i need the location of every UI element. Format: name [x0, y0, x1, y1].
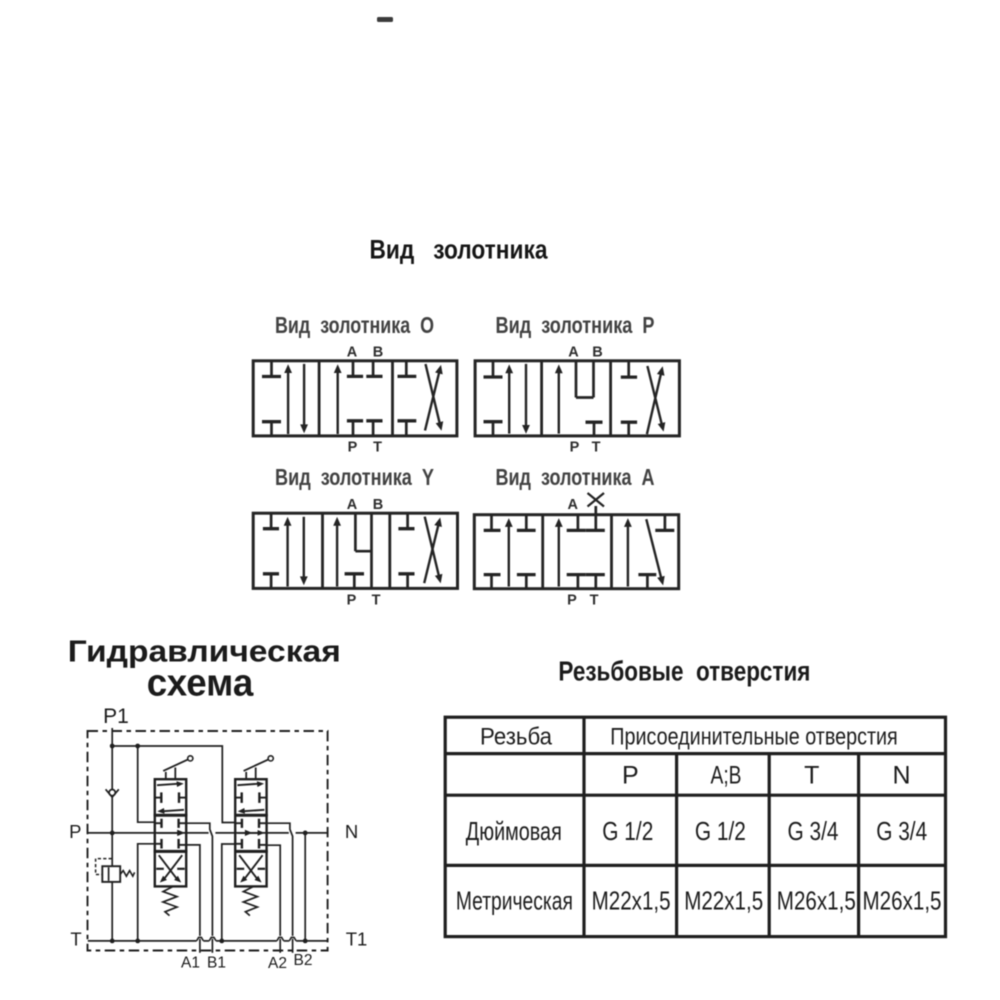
svg-text:Присоединительные отверстия: Присоединительные отверстия: [610, 724, 898, 751]
svg-text:Резьба: Резьба: [480, 724, 552, 751]
svg-text:T1: T1: [346, 929, 368, 950]
svg-text:схема: схема: [147, 663, 254, 705]
svg-text:T: T: [804, 762, 819, 790]
svg-text:Резьбовые отверстия: Резьбовые отверстия: [558, 656, 810, 687]
svg-text:B: B: [592, 345, 602, 361]
svg-text:Дюймовая: Дюймовая: [466, 816, 562, 846]
svg-text:A;B: A;B: [711, 762, 742, 790]
svg-text:B2: B2: [294, 952, 313, 969]
svg-text:Вид золотника Y: Вид золотника Y: [275, 464, 434, 490]
svg-text:A: A: [347, 345, 358, 361]
svg-text:P: P: [622, 762, 639, 790]
svg-text:M22x1,5: M22x1,5: [684, 886, 763, 916]
svg-text:Вид золотника: Вид золотника: [370, 235, 549, 265]
svg-text:Вид золотника А: Вид золотника А: [496, 464, 655, 490]
svg-text:Вид золотника О: Вид золотника О: [275, 312, 434, 338]
svg-text:T: T: [590, 593, 599, 609]
svg-text:P: P: [348, 440, 358, 456]
svg-text:M26x1,5: M26x1,5: [777, 886, 856, 916]
svg-text:A1: A1: [181, 955, 200, 972]
svg-text:Вид золотника Р: Вид золотника Р: [496, 312, 655, 338]
svg-text:G 1/2: G 1/2: [695, 816, 746, 846]
svg-text:B: B: [373, 497, 383, 513]
svg-text:N: N: [892, 762, 910, 790]
svg-text:P: P: [567, 593, 577, 609]
svg-text:T: T: [592, 440, 601, 456]
svg-text:A2: A2: [268, 955, 287, 972]
svg-text:G 3/4: G 3/4: [788, 816, 839, 846]
svg-text:T: T: [373, 440, 382, 456]
svg-text:P: P: [347, 593, 357, 609]
svg-text:A: A: [568, 497, 579, 513]
svg-text:G 3/4: G 3/4: [876, 816, 927, 846]
svg-text:N: N: [345, 821, 358, 842]
svg-text:P1: P1: [103, 705, 129, 728]
svg-text:T: T: [372, 593, 381, 609]
svg-text:Метрическая: Метрическая: [456, 886, 573, 916]
svg-text:A: A: [347, 497, 358, 513]
svg-text:T: T: [70, 929, 81, 950]
svg-text:M26x1,5: M26x1,5: [863, 886, 942, 916]
svg-text:M22x1,5: M22x1,5: [592, 886, 671, 916]
svg-text:P: P: [570, 440, 580, 456]
svg-text:G 1/2: G 1/2: [602, 816, 653, 846]
svg-text:B1: B1: [207, 955, 226, 972]
svg-text:P: P: [69, 821, 81, 842]
svg-text:B: B: [373, 345, 383, 361]
svg-text:A: A: [568, 345, 579, 361]
